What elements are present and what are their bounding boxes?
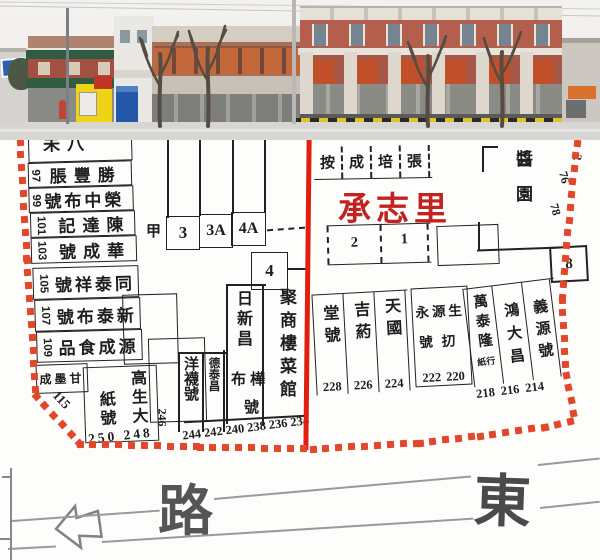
- house-number: 240: [225, 421, 245, 438]
- lot-label: 張: [407, 154, 422, 170]
- boundary-dash: [558, 296, 565, 303]
- boundary-dash: [570, 409, 578, 417]
- house-number: 224: [384, 376, 404, 392]
- lot-label: 按: [320, 156, 335, 172]
- boundary-dash: [180, 443, 187, 450]
- direction-arrow-left: [44, 494, 110, 560]
- lot-line: [167, 140, 169, 218]
- boundary-dash: [167, 443, 174, 450]
- lot-number: 105: [37, 274, 49, 293]
- boundary-dash: [560, 322, 567, 329]
- boundary-dash: [235, 444, 242, 451]
- cross-street-tick: [2, 476, 12, 478]
- boundary-dash: [322, 445, 329, 452]
- boundary-dash: [528, 425, 536, 433]
- shop-name: 脹豐勝: [49, 161, 122, 188]
- cadastral-map: 未八 97 脹豐勝 99 號布中榮 101 記達陳 103 號成華 105 號祥…: [0, 140, 600, 560]
- table-row: 未八: [28, 140, 133, 163]
- boundary-dash: [573, 140, 581, 147]
- boundary-dash: [18, 164, 25, 171]
- shop-name: 鴻大昌: [500, 290, 526, 383]
- shop-name: 萬泰隆: [471, 293, 493, 353]
- boundary-dash: [541, 423, 549, 431]
- boundary-dash: [564, 229, 572, 237]
- lot-label: 8: [565, 256, 573, 272]
- lot-label: 3A: [206, 222, 226, 239]
- boundary-dash: [567, 396, 575, 404]
- boundary-dash: [558, 294, 566, 302]
- boundary-dash: [57, 420, 67, 430]
- house-number: 242: [203, 424, 223, 441]
- boundary-dash: [19, 177, 26, 184]
- top-lot-row: 按 成 培 張: [314, 145, 433, 180]
- street-photo: [0, 0, 600, 140]
- shop-name: 義源號: [528, 284, 554, 379]
- lot-line: [478, 222, 480, 250]
- shop-name-small: 紙行: [476, 353, 495, 368]
- lot-label: 培: [378, 155, 393, 171]
- shop-name: 成墨甘: [39, 369, 85, 388]
- lot-label: 4A: [239, 220, 259, 237]
- lot-line: [226, 284, 266, 286]
- lot-8: 8: [549, 245, 589, 283]
- lot-label: 4: [265, 261, 274, 280]
- boundary-dash: [455, 435, 463, 443]
- shop-rixinchang: 日新昌: [234, 290, 250, 350]
- boundary-dash: [335, 444, 342, 451]
- boundary-dash: [40, 401, 50, 411]
- boundary-dash: [553, 420, 561, 428]
- lot-line: [482, 146, 498, 148]
- boundary-dash: [16, 140, 23, 146]
- shop-jiangyuan: 醬園: [514, 150, 531, 220]
- boundary-dash: [559, 309, 566, 316]
- boundary-dash: [75, 439, 85, 449]
- boundary-dash: [274, 445, 281, 452]
- shop-name: 堂號: [320, 304, 338, 349]
- boundary-dash: [413, 439, 420, 446]
- cross-street-line: [10, 468, 12, 560]
- lot-cell: 按: [314, 147, 344, 180]
- shop-name: 未八: [43, 140, 92, 155]
- boundary-dash: [348, 443, 355, 450]
- house-number: 222: [422, 370, 442, 386]
- lot-line: [232, 140, 234, 214]
- shop-buhua: 布樺: [231, 368, 269, 389]
- street-edge-line: [540, 501, 600, 509]
- shop-hao: 號: [244, 396, 259, 417]
- unit-cell: 1: [382, 224, 430, 263]
- boundary-dash: [565, 216, 573, 224]
- unit-cell: 2: [327, 225, 383, 264]
- lot-line: [264, 140, 266, 212]
- shop-jushanglou: 聚商樓菜館: [278, 288, 295, 403]
- boundary-dash: [66, 429, 76, 439]
- cross-street-tick: [0, 538, 10, 540]
- lot-number: 97: [29, 169, 41, 182]
- unit-label: 1: [401, 231, 409, 247]
- boundary-dash: [374, 442, 381, 449]
- boundary-dash: [209, 444, 216, 451]
- boundary-dash: [416, 439, 424, 447]
- alley-red-line: [303, 140, 311, 450]
- bare-trees: [0, 0, 600, 140]
- lot-label: 成: [349, 155, 364, 171]
- house-number: 238: [246, 418, 266, 435]
- boundary-dash: [568, 191, 576, 199]
- boundary-dash: [19, 190, 26, 197]
- house-number: 220: [446, 369, 466, 385]
- lot-line: [288, 268, 306, 270]
- lot-number: 109: [41, 337, 53, 356]
- shop-detaichang: 德泰昌: [207, 357, 219, 392]
- house-number: 228: [323, 379, 343, 395]
- unit-label: 2: [351, 235, 359, 251]
- edge-number: 76: [555, 170, 573, 185]
- street-edge-line: [8, 545, 56, 550]
- east-shop-block: 萬泰隆 紙行 鴻大昌 義源號: [462, 278, 565, 387]
- boundary-dash: [468, 433, 476, 441]
- table-row: 101 記達陳: [30, 210, 136, 238]
- boundary-dash: [141, 442, 148, 449]
- empty-lot: [436, 224, 499, 266]
- table-row: 103 號成華: [31, 235, 138, 264]
- boundary-dash: [361, 442, 368, 449]
- lot-number: 103: [35, 241, 47, 260]
- lot-4a: 4A: [231, 212, 266, 246]
- boundary-dash: [476, 432, 484, 440]
- lot-cell: 成: [343, 146, 373, 179]
- shop-name: 永源生: [415, 299, 465, 322]
- boundary-dash: [540, 423, 548, 431]
- boundary-dash: [20, 203, 27, 210]
- street-edge-line: [214, 476, 471, 500]
- screenshot: 未八 97 脹豐勝 99 號布中榮 101 記達陳 103 號成華 105 號祥…: [0, 0, 600, 560]
- lot-3: 3: [166, 216, 200, 250]
- boundary-dash: [154, 442, 161, 449]
- boundary-dash: [261, 445, 268, 452]
- lot-line: [226, 284, 228, 424]
- table-row: 97 脹豐勝: [28, 160, 133, 188]
- boundary-dash: [442, 436, 450, 444]
- house-number: 226: [353, 378, 373, 394]
- shop-yangwahao: 洋襪號: [182, 356, 197, 401]
- pharmacy-block: 堂號 228 吉葯 226 天國 224: [311, 290, 412, 396]
- boundary-dash: [565, 384, 573, 392]
- boundary-dash: [222, 444, 229, 451]
- boundary-dash: [400, 440, 407, 447]
- lot-line: [482, 146, 484, 172]
- lot-line: [262, 284, 264, 426]
- boundary-dash: [566, 204, 574, 212]
- shop-name: 記達陳: [58, 210, 131, 237]
- boundary-dash: [387, 441, 394, 448]
- jia-label: 甲: [146, 220, 161, 241]
- boundary-dash: [248, 444, 255, 451]
- boundary-dash: [429, 438, 437, 446]
- shop-col: 天國 224: [374, 291, 410, 392]
- boundary-dash: [287, 445, 294, 452]
- shop-name: 號㧅: [419, 329, 465, 351]
- shop-name: 天國: [382, 297, 400, 342]
- boundary-dash: [193, 443, 200, 450]
- dashed-lot-line: [267, 227, 305, 232]
- lot-label: 3: [179, 223, 188, 242]
- house-number: 218: [475, 385, 495, 402]
- lot-number: 107: [39, 306, 51, 325]
- house-number: 236: [268, 416, 288, 433]
- shop-name: 號布中榮: [44, 185, 125, 212]
- lot-cell: 培: [372, 146, 402, 179]
- boundary-dash: [489, 430, 497, 438]
- house-number: 214: [524, 379, 544, 396]
- boundary-dash: [196, 443, 203, 450]
- lot-number: 99: [30, 194, 42, 207]
- boundary-dash: [49, 410, 59, 420]
- unit-lot-row: 2 1: [326, 223, 431, 266]
- shop-col: 堂號 228: [311, 294, 348, 396]
- edge-number: 78: [546, 202, 564, 217]
- lot-3a: 3A: [199, 214, 233, 248]
- boundary-dash: [566, 417, 574, 425]
- lot-number: 101: [35, 215, 47, 234]
- shop-name: 號祥泰同: [55, 269, 136, 296]
- street-char-dong: 東: [473, 455, 533, 539]
- shop-name: 吉葯: [351, 301, 369, 346]
- edge-number: 2: [569, 154, 584, 161]
- boundary-dash: [570, 165, 578, 173]
- boundary-dash: [17, 151, 24, 158]
- shop-name: 號成華: [59, 236, 132, 263]
- boundary-dash: [76, 440, 83, 447]
- lot-cell: 張: [401, 145, 431, 178]
- boundary-dash: [502, 428, 510, 436]
- street-edge-line: [538, 458, 600, 466]
- lot-line: [178, 352, 180, 432]
- house-number: 244: [182, 426, 202, 443]
- house-number: 216: [500, 382, 520, 399]
- table-row: 99 號布中榮: [28, 185, 134, 213]
- boundary-dash: [515, 427, 523, 435]
- boundary-dash: [309, 445, 316, 452]
- lot-line: [199, 140, 201, 216]
